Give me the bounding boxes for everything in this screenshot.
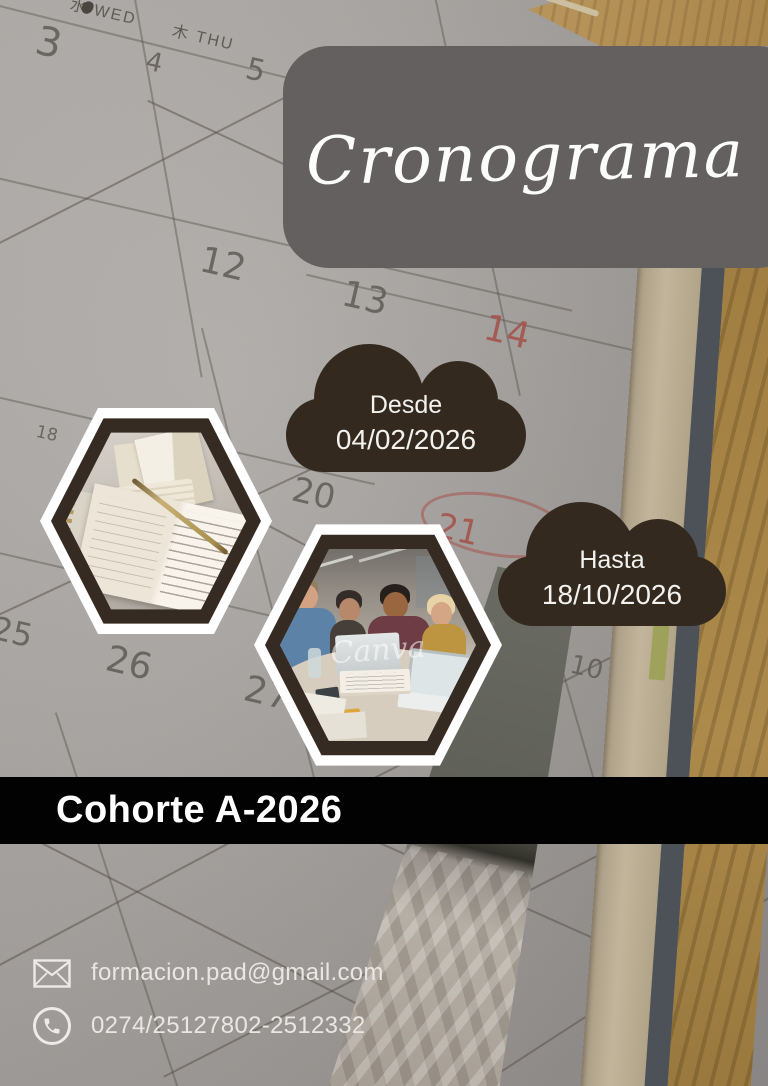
contact-phone-row: 0274/25127802-2512332 <box>33 1007 384 1045</box>
badge-date: 04/02/2026 <box>286 422 526 458</box>
poster-title: Cronograma <box>282 114 768 199</box>
phone-text: 0274/25127802-2512332 <box>91 1012 366 1040</box>
schedule-poster: 水 WED 木 THU 3 4 5 12 13 18 20 25 26 27 1… <box>0 0 768 1086</box>
cohort-band: Cohorte A-2026 <box>0 777 768 844</box>
badge-label: Hasta <box>498 543 726 577</box>
hexagon-photo-notebook <box>40 402 272 640</box>
badge-label: Desde <box>286 388 526 422</box>
open-book <box>340 669 411 693</box>
title-panel: Cronograma <box>283 46 768 268</box>
badge-date: 18/10/2026 <box>498 577 726 613</box>
hexagon-photo-students: Canva <box>254 518 502 772</box>
envelope-icon <box>33 959 71 988</box>
phone-icon <box>33 1007 71 1045</box>
email-text: formacion.pad@gmail.com <box>91 959 384 987</box>
cohort-title: Cohorte A-2026 <box>56 789 342 832</box>
cloud-badge-desde: Desde 04/02/2026 <box>286 398 526 472</box>
contact-info: formacion.pad@gmail.com 0274/25127802-25… <box>33 954 384 1060</box>
cloud-badge-hasta: Hasta 18/10/2026 <box>498 556 726 626</box>
contact-email-row: formacion.pad@gmail.com <box>33 954 384 992</box>
